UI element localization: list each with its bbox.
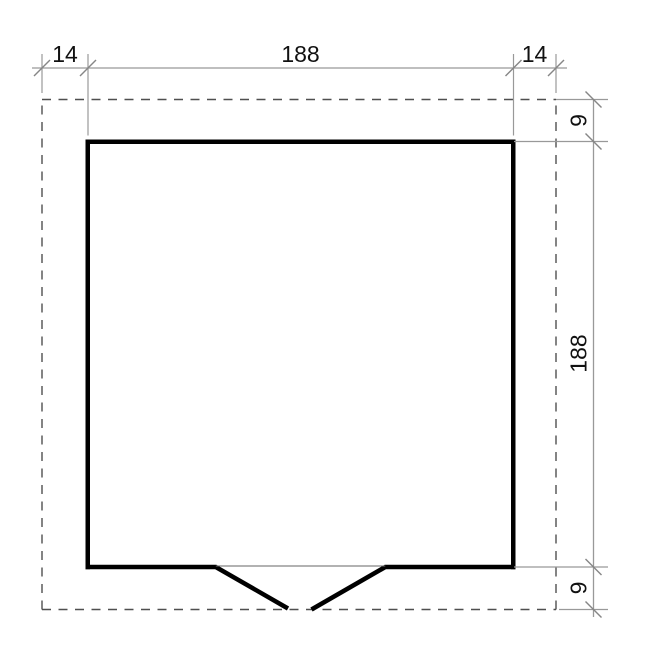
svg-text:9: 9 xyxy=(566,114,592,127)
svg-text:188: 188 xyxy=(281,41,319,67)
svg-text:188: 188 xyxy=(566,334,592,372)
svg-text:14: 14 xyxy=(522,41,548,67)
svg-text:14: 14 xyxy=(52,41,78,67)
svg-text:9: 9 xyxy=(566,582,592,595)
